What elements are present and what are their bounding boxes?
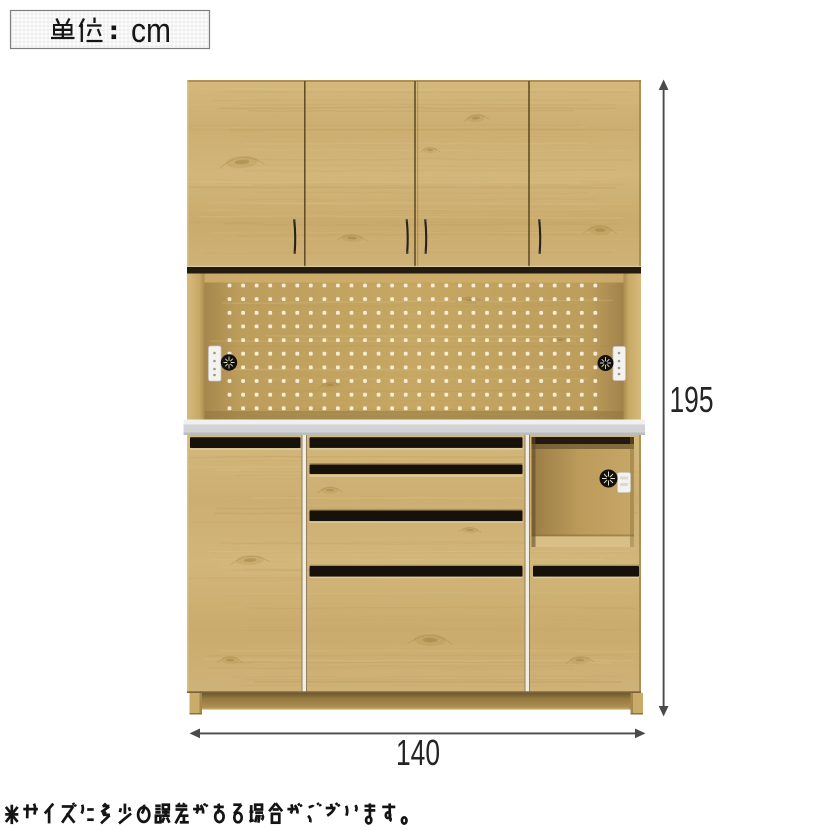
svg-text:195: 195 — [670, 379, 714, 420]
svg-text:cm: cm — [131, 12, 171, 50]
svg-text:140: 140 — [396, 732, 440, 773]
